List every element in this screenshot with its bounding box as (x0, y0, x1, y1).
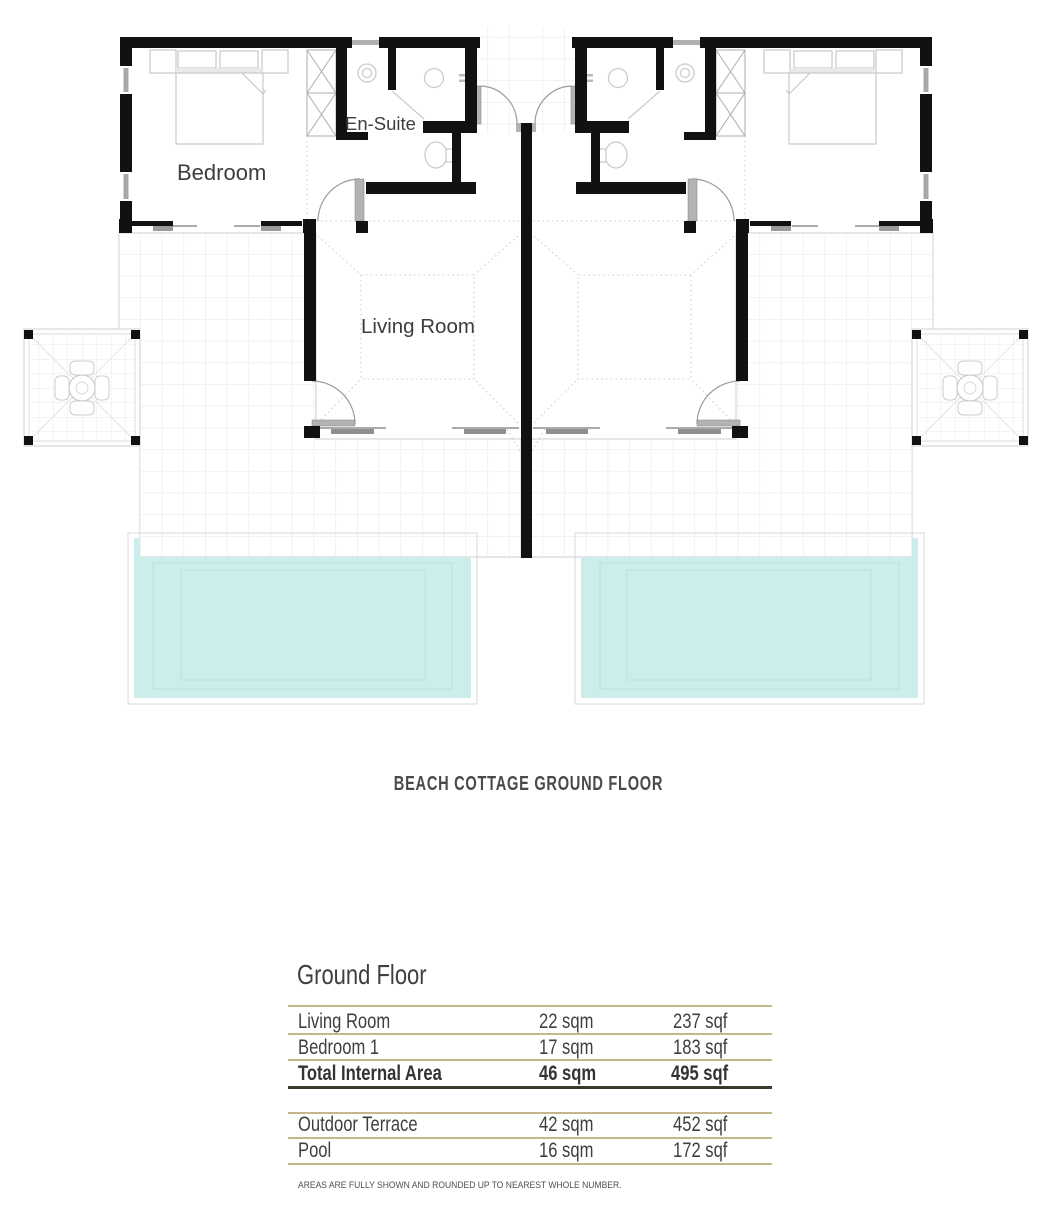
svg-text:En-Suite: En-Suite (345, 113, 416, 134)
svg-text:Living Room: Living Room (361, 315, 475, 338)
svg-text:Bedroom: Bedroom (177, 160, 266, 185)
